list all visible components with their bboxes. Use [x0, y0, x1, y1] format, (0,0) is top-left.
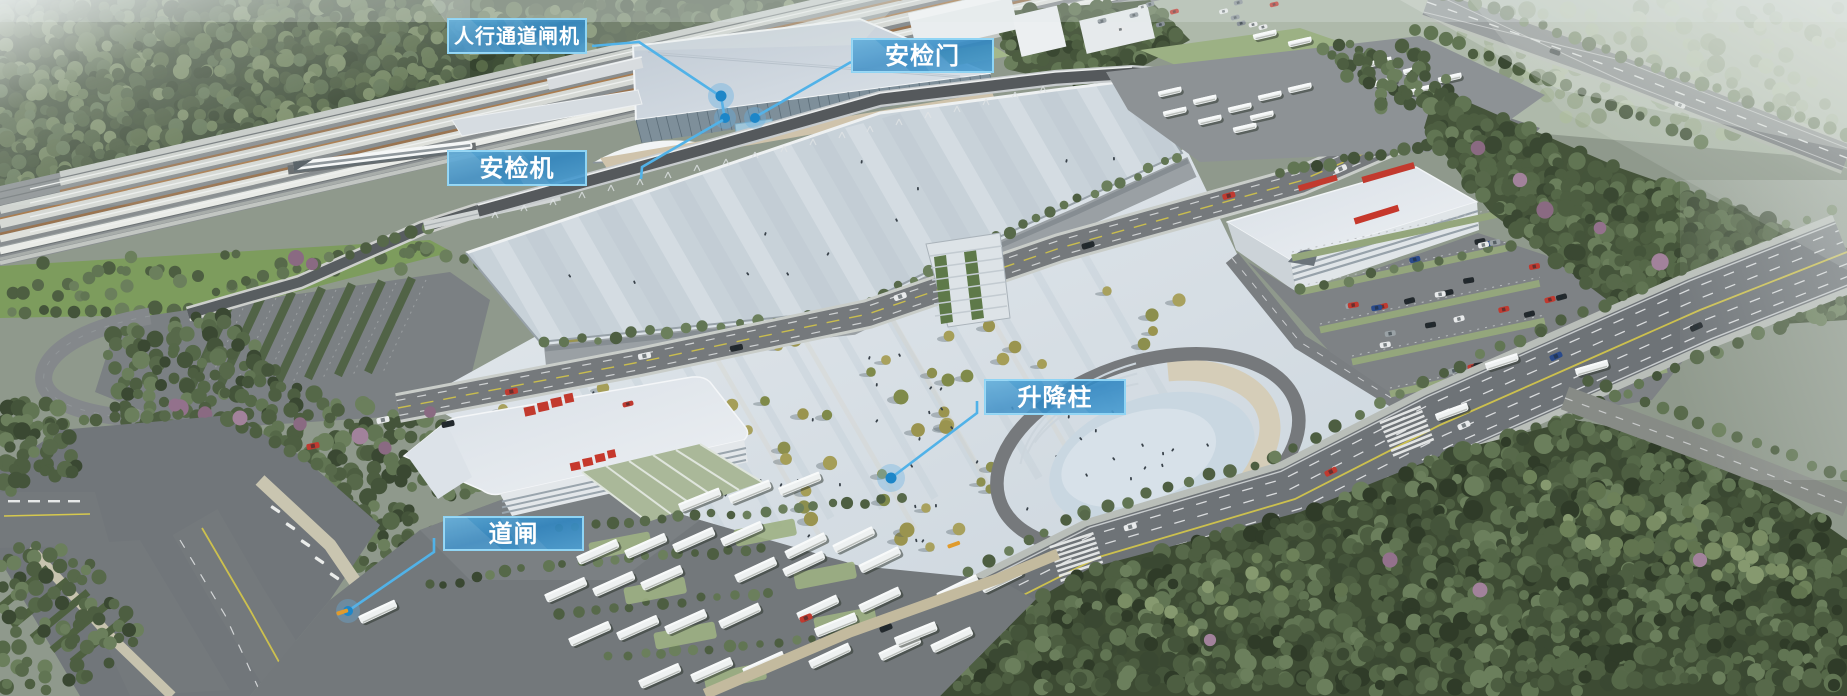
svg-text:升降柱: 升降柱 [1018, 384, 1093, 412]
svg-text:人行通道闸机: 人行通道闸机 [454, 24, 580, 48]
svg-text:道闸: 道闸 [489, 520, 539, 548]
svg-text:安检机: 安检机 [480, 155, 555, 183]
svg-text:安检门: 安检门 [885, 42, 960, 70]
